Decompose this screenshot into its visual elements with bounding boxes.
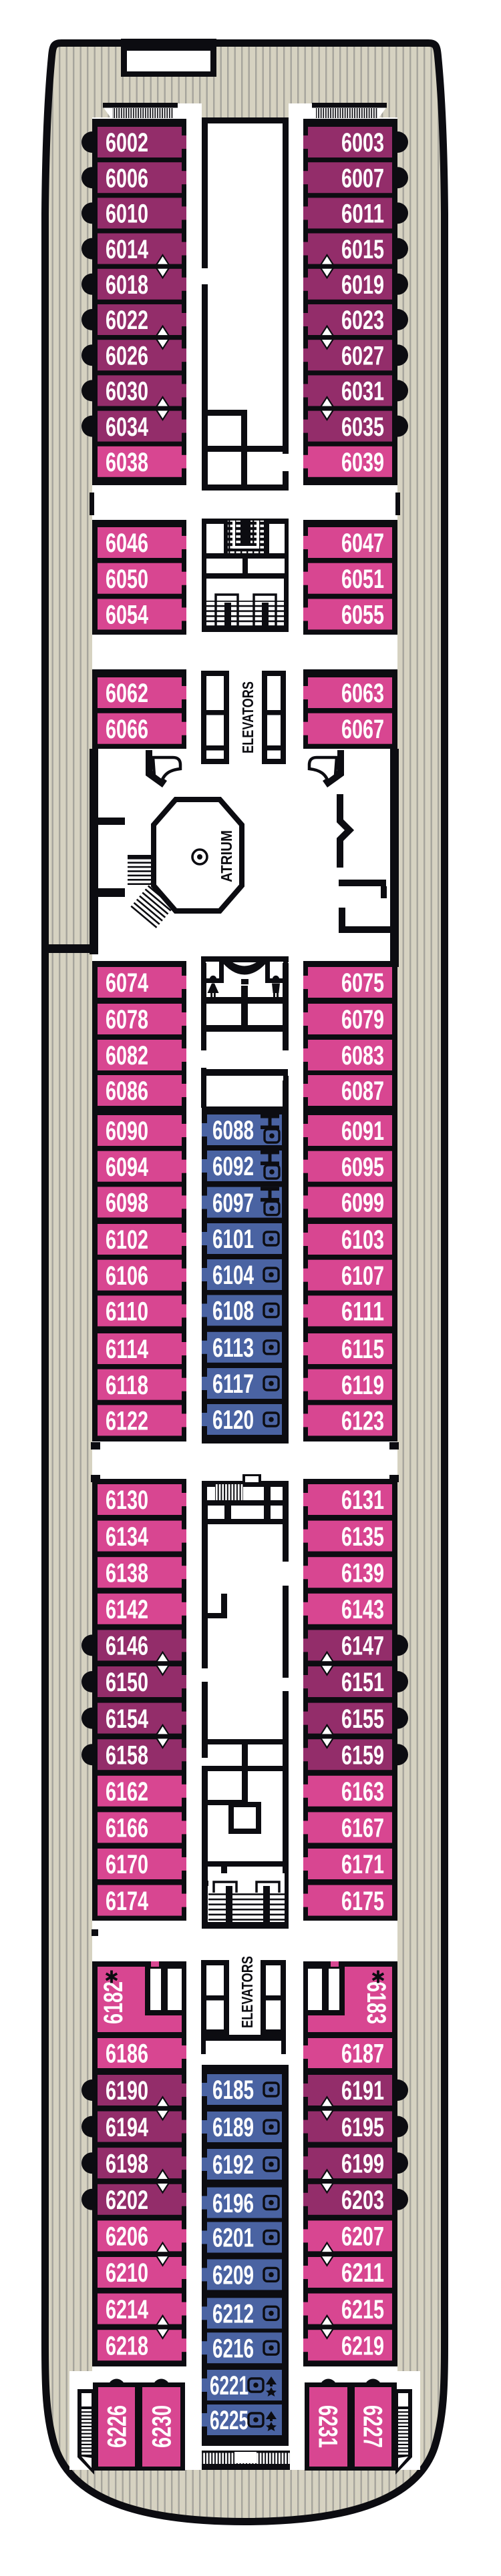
svg-text:6097: 6097: [212, 1189, 254, 1218]
svg-text:6027: 6027: [341, 341, 384, 370]
svg-text:6023: 6023: [341, 306, 384, 335]
svg-text:6134: 6134: [106, 1522, 149, 1552]
svg-text:6117: 6117: [212, 1369, 254, 1399]
svg-text:6087: 6087: [341, 1076, 384, 1106]
svg-text:6082: 6082: [106, 1041, 148, 1070]
svg-text:6114: 6114: [106, 1335, 149, 1364]
svg-text:6151: 6151: [341, 1668, 384, 1697]
svg-text:6142: 6142: [106, 1595, 148, 1624]
svg-text:6094: 6094: [106, 1153, 149, 1182]
svg-text:6107: 6107: [341, 1261, 384, 1291]
svg-text:6195: 6195: [341, 2113, 384, 2142]
svg-text:6192: 6192: [212, 2150, 254, 2180]
svg-text:6146: 6146: [106, 1632, 148, 1661]
svg-text:6155: 6155: [341, 1704, 384, 1734]
svg-text:6050: 6050: [106, 565, 148, 594]
svg-text:6113: 6113: [212, 1333, 254, 1363]
svg-text:6104: 6104: [212, 1261, 255, 1290]
svg-text:6210: 6210: [106, 2258, 148, 2288]
svg-text:6039: 6039: [341, 448, 384, 477]
svg-text:6183: 6183: [361, 1981, 391, 2024]
svg-text:6182: 6182: [99, 1981, 128, 2024]
svg-text:6102: 6102: [106, 1225, 148, 1255]
svg-text:6211: 6211: [341, 2258, 384, 2288]
svg-text:6135: 6135: [341, 1522, 384, 1552]
svg-text:6046: 6046: [106, 529, 148, 558]
svg-text:6118: 6118: [106, 1371, 148, 1400]
svg-text:6190: 6190: [106, 2076, 148, 2106]
svg-text:6174: 6174: [106, 1887, 149, 1916]
svg-text:6095: 6095: [341, 1153, 384, 1182]
svg-text:6122: 6122: [106, 1407, 148, 1436]
svg-text:6099: 6099: [341, 1189, 384, 1218]
svg-text:6198: 6198: [106, 2149, 148, 2178]
svg-text:6170: 6170: [106, 1850, 148, 1879]
svg-text:6147: 6147: [341, 1632, 384, 1661]
svg-text:6226: 6226: [103, 2405, 132, 2448]
svg-text:6171: 6171: [341, 1850, 384, 1879]
svg-text:6106: 6106: [106, 1261, 148, 1291]
svg-text:6231: 6231: [313, 2405, 342, 2448]
svg-text:6163: 6163: [341, 1777, 384, 1807]
svg-text:6010: 6010: [106, 200, 148, 229]
svg-text:6230: 6230: [148, 2405, 177, 2448]
svg-text:6088: 6088: [212, 1116, 254, 1145]
svg-text:6003: 6003: [341, 128, 384, 157]
svg-text:ELEVATORS: ELEVATORS: [239, 681, 257, 753]
svg-text:6202: 6202: [106, 2186, 148, 2215]
svg-text:6189: 6189: [212, 2113, 254, 2142]
svg-text:6055: 6055: [341, 601, 384, 630]
svg-text:6187: 6187: [341, 2039, 384, 2069]
svg-text:6119: 6119: [341, 1371, 384, 1400]
svg-text:6066: 6066: [106, 715, 148, 744]
svg-text:6047: 6047: [341, 529, 384, 558]
svg-text:6083: 6083: [341, 1041, 384, 1070]
svg-text:6186: 6186: [106, 2039, 148, 2069]
svg-text:6203: 6203: [341, 2186, 384, 2215]
svg-text:6166: 6166: [106, 1814, 148, 1843]
svg-text:6196: 6196: [212, 2189, 254, 2218]
svg-text:6214: 6214: [106, 2295, 149, 2324]
svg-text:6038: 6038: [106, 448, 148, 477]
svg-text:6221: 6221: [210, 2371, 248, 2400]
svg-text:6194: 6194: [106, 2113, 149, 2142]
svg-text:6139: 6139: [341, 1558, 384, 1588]
svg-text:6092: 6092: [212, 1152, 254, 1181]
svg-text:6007: 6007: [341, 164, 384, 193]
svg-text:6143: 6143: [341, 1595, 384, 1624]
svg-text:6019: 6019: [341, 270, 384, 300]
svg-text:6103: 6103: [341, 1225, 384, 1255]
svg-text:6051: 6051: [341, 565, 384, 594]
svg-text:6110: 6110: [106, 1297, 148, 1327]
svg-text:6078: 6078: [106, 1005, 148, 1034]
svg-text:6218: 6218: [106, 2331, 148, 2360]
svg-text:6079: 6079: [341, 1005, 384, 1034]
svg-text:6014: 6014: [106, 235, 149, 264]
svg-text:6098: 6098: [106, 1189, 148, 1218]
svg-text:6219: 6219: [341, 2331, 384, 2360]
svg-text:6015: 6015: [341, 235, 384, 264]
svg-text:6111: 6111: [341, 1297, 384, 1327]
svg-text:6212: 6212: [212, 2300, 254, 2329]
svg-text:6130: 6130: [106, 1486, 148, 1515]
svg-text:6054: 6054: [106, 601, 149, 630]
svg-text:6120: 6120: [212, 1405, 254, 1435]
svg-text:ELEVATORS: ELEVATORS: [238, 1956, 256, 2028]
svg-text:6018: 6018: [106, 270, 148, 300]
svg-text:6159: 6159: [341, 1740, 384, 1770]
svg-text:6207: 6207: [341, 2222, 384, 2252]
svg-text:6075: 6075: [341, 968, 384, 998]
svg-text:6158: 6158: [106, 1740, 148, 1770]
svg-text:6175: 6175: [341, 1887, 384, 1916]
svg-text:6227: 6227: [357, 2405, 387, 2448]
svg-text:6062: 6062: [106, 679, 148, 708]
svg-text:6225: 6225: [210, 2406, 248, 2435]
svg-text:6006: 6006: [106, 164, 148, 193]
svg-text:6131: 6131: [341, 1486, 384, 1515]
svg-text:6150: 6150: [106, 1668, 148, 1697]
svg-text:ATRIUM: ATRIUM: [218, 830, 235, 882]
svg-text:6031: 6031: [341, 377, 384, 406]
svg-text:6086: 6086: [106, 1076, 148, 1106]
svg-text:6108: 6108: [212, 1297, 254, 1326]
svg-text:6123: 6123: [341, 1407, 384, 1436]
svg-text:6199: 6199: [341, 2149, 384, 2178]
svg-text:6154: 6154: [106, 1704, 149, 1734]
svg-text:6185: 6185: [212, 2075, 254, 2105]
svg-text:6090: 6090: [106, 1116, 148, 1146]
svg-text:6022: 6022: [106, 306, 148, 335]
svg-text:6002: 6002: [106, 128, 148, 157]
svg-text:6167: 6167: [341, 1814, 384, 1843]
svg-text:6201: 6201: [212, 2224, 254, 2253]
svg-text:6115: 6115: [341, 1335, 384, 1364]
svg-text:6191: 6191: [341, 2076, 384, 2106]
svg-text:6035: 6035: [341, 412, 384, 442]
svg-text:6067: 6067: [341, 715, 384, 744]
svg-text:6206: 6206: [106, 2222, 148, 2252]
svg-text:6209: 6209: [212, 2261, 254, 2290]
svg-text:6101: 6101: [212, 1225, 254, 1254]
svg-text:6063: 6063: [341, 679, 384, 708]
svg-text:6026: 6026: [106, 341, 148, 370]
svg-text:6138: 6138: [106, 1558, 148, 1588]
svg-text:6030: 6030: [106, 377, 148, 406]
svg-text:6162: 6162: [106, 1777, 148, 1807]
svg-text:6074: 6074: [106, 968, 149, 998]
svg-text:6011: 6011: [341, 200, 384, 229]
svg-text:6216: 6216: [212, 2334, 254, 2363]
svg-text:6091: 6091: [341, 1116, 384, 1146]
svg-text:6034: 6034: [106, 412, 149, 442]
svg-text:6215: 6215: [341, 2295, 384, 2324]
